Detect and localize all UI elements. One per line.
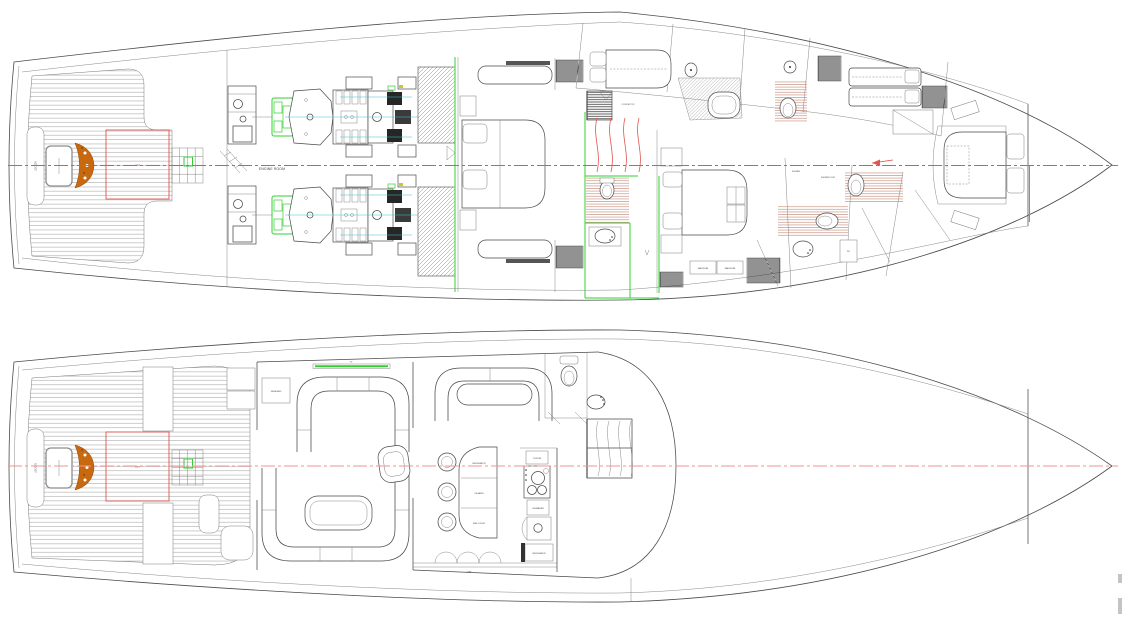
svg-text:STEP: STEP: [467, 572, 472, 574]
svg-text:WINE COOLER: WINE COOLER: [473, 523, 486, 525]
engine-room-label: ENGINE ROOM: [259, 167, 285, 171]
main-deck-plan: SIDEBOARD TV: [8, 330, 1118, 602]
master-cabinet-aft: [506, 259, 550, 263]
svg-text:COUNTER: COUNTER: [533, 458, 542, 460]
galley-locker-dark: [521, 543, 525, 562]
svg-text:SHOWER: SHOWER: [792, 171, 801, 173]
deck-notch-2: [143, 503, 173, 564]
dinette-table: [457, 384, 532, 405]
svg-text:DISHWASHER: DISHWASHER: [532, 507, 544, 510]
genset-starboard: [228, 186, 256, 244]
yacht-ga-drawing: LOCKER LIFT: [0, 0, 1125, 633]
cockpit-seat-2: [221, 526, 253, 560]
edge-mark-2: [1118, 598, 1122, 614]
toilet-fwd: [816, 213, 838, 229]
bar-counter: REFRIGERATOR ICE MAKER WINE COOLER: [459, 447, 497, 538]
toilet-shower-room: [848, 174, 864, 196]
locker-hatch-2: [556, 246, 583, 268]
svg-text:WARDROBE: WARDROBE: [725, 267, 736, 270]
fuel-tank-port: [418, 67, 455, 143]
toilet-2: [780, 98, 796, 118]
galley-stove: [524, 466, 550, 498]
crew-bed: [944, 132, 1006, 198]
svg-text:SIDEBOARD: SIDEBOARD: [271, 390, 282, 393]
locker-hatch-6: [922, 86, 947, 108]
day-head-toilet: [561, 366, 577, 386]
fuel-tank-starboard: [418, 187, 455, 276]
master-sofa-fwd: [478, 66, 552, 84]
armchair: [377, 444, 412, 484]
master-sofa-aft: [478, 240, 552, 258]
locker-hatch-1: [556, 60, 583, 82]
sink-fwd: [793, 241, 813, 257]
shower-door-label: SHOWER DOOR: [821, 177, 836, 179]
genset-port: [228, 86, 256, 144]
deck-notch-1: [143, 367, 173, 431]
locker-hatch-5: [818, 56, 841, 81]
cockpit-locker-2: [227, 391, 255, 409]
sink-midship: [595, 229, 615, 243]
svg-text:REFRIGERATOR: REFRIGERATOR: [472, 462, 486, 465]
cockpit-seat-1: [199, 495, 219, 533]
master-cabinet-fwd: [506, 61, 550, 65]
day-head-sink: [587, 395, 605, 409]
lower-deck-plan: ENGINE ROOM: [8, 12, 1118, 300]
locker-hatch-3: [660, 272, 683, 287]
svg-text:WARDROBE: WARDROBE: [698, 267, 709, 270]
svg-text:REFRIGERATOR: REFRIGERATOR: [532, 552, 546, 555]
cockpit-locker-1: [227, 368, 255, 390]
svg-text:ICE MAKER: ICE MAKER: [474, 492, 484, 495]
edge-mark-1: [1118, 574, 1122, 583]
toilet-midship: [600, 181, 614, 199]
counter-label: COUNTER TOP: [621, 104, 635, 106]
yacht-ga-drawing-page: LOCKER LIFT: [0, 0, 1125, 633]
